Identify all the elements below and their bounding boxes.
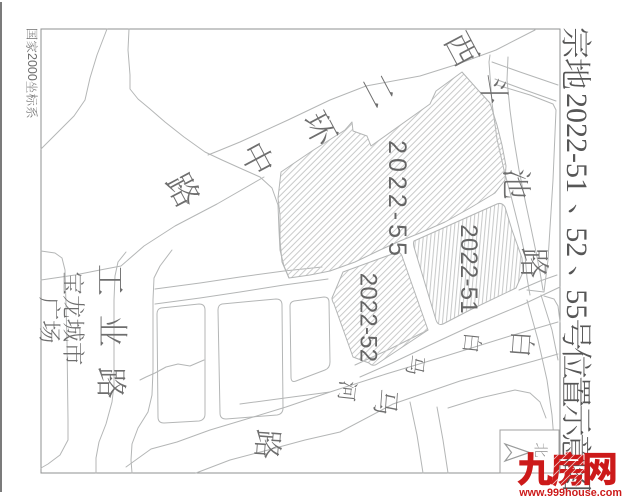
svg-text:2022-51: 2022-51 (455, 224, 482, 313)
svg-text:55: 55 (560, 289, 593, 319)
svg-text:2022-52: 2022-52 (354, 273, 381, 362)
svg-text:2022-55: 2022-55 (383, 140, 411, 260)
svg-text:2000: 2000 (25, 53, 39, 81)
svg-text:2022-51: 2022-51 (560, 93, 593, 193)
svg-text:52: 52 (560, 227, 593, 257)
svg-text:www.999house.com: www.999house.com (518, 487, 622, 499)
